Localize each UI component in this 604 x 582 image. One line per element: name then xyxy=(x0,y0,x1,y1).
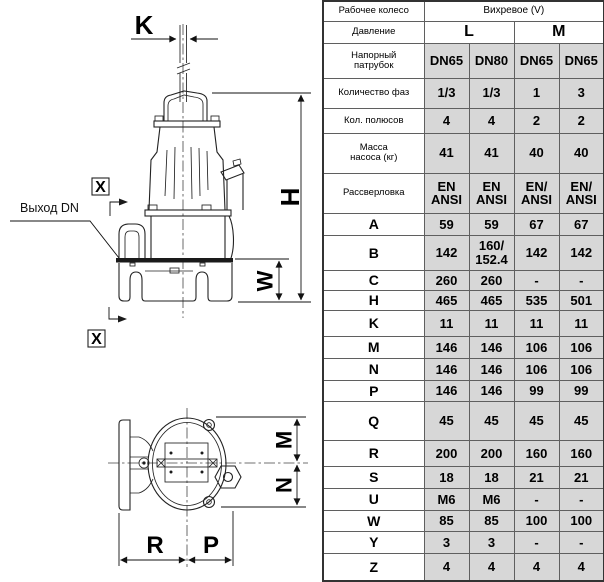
table-row: C260260-- xyxy=(323,270,604,290)
table-row: K11111111 xyxy=(323,310,604,336)
row-value: 106 xyxy=(514,337,559,359)
row-value: 4 xyxy=(469,108,514,133)
bottom-view: M N R P xyxy=(108,408,308,567)
row-value: M6 xyxy=(424,489,469,511)
pressure-option-m: M xyxy=(514,21,604,43)
pressure-row: Давление L M xyxy=(323,21,604,43)
section-marker-upper: X xyxy=(95,179,106,196)
row-value: 99 xyxy=(559,381,604,402)
row-value: 160 xyxy=(559,441,604,467)
row-value: 11 xyxy=(514,310,559,336)
row-label: C xyxy=(323,270,424,290)
dim-label-h: H xyxy=(275,188,305,207)
row-label: Рассверловка xyxy=(323,173,424,213)
row-value: 146 xyxy=(469,337,514,359)
row-value: 106 xyxy=(559,337,604,359)
table-row: H465465535501 xyxy=(323,290,604,310)
row-value: 160 xyxy=(514,441,559,467)
row-value: - xyxy=(514,532,559,554)
base-plate xyxy=(116,258,233,263)
discharge-boss xyxy=(215,466,241,488)
row-value: 1/3 xyxy=(424,78,469,108)
outlet-size-value: DN65 xyxy=(559,43,604,78)
section-arrow-upper xyxy=(110,202,119,216)
cable-break-marks xyxy=(177,63,190,74)
table-row: B142160/ 152.4142142 xyxy=(323,235,604,270)
handle-inner xyxy=(168,95,203,121)
row-value: 142 xyxy=(514,235,559,270)
row-label: R xyxy=(323,441,424,467)
table-row: R200200160160 xyxy=(323,441,604,467)
row-value: EN/ ANSI xyxy=(559,173,604,213)
table-row: W8585100100 xyxy=(323,511,604,532)
row-value: M6 xyxy=(469,489,514,511)
table-row: UM6M6-- xyxy=(323,489,604,511)
motor-flange xyxy=(145,210,231,216)
row-label: K xyxy=(323,310,424,336)
row-value: 99 xyxy=(514,381,559,402)
row-value: 11 xyxy=(559,310,604,336)
dimension-table-area: Рабочее колесо Вихревое (V) Давление L M… xyxy=(322,0,604,582)
row-value: 45 xyxy=(469,402,514,441)
section-arrow-lower xyxy=(109,307,118,319)
dimension-rows: Количество фаз1/31/313Кол. полюсов4422Ма… xyxy=(323,78,604,581)
pump-datasheet: K xyxy=(0,0,604,582)
row-label: N xyxy=(323,359,424,381)
row-value: - xyxy=(559,270,604,290)
outlet-flange xyxy=(119,420,130,510)
table-row: A59596767 xyxy=(323,213,604,235)
row-value: 21 xyxy=(559,467,604,489)
row-label: B xyxy=(323,235,424,270)
row-value: 260 xyxy=(469,270,514,290)
row-value: - xyxy=(514,270,559,290)
row-label: M xyxy=(323,337,424,359)
row-value: 3 xyxy=(424,532,469,554)
row-label: Q xyxy=(323,402,424,441)
row-value: 67 xyxy=(514,213,559,235)
pressure-label: Давление xyxy=(323,21,424,43)
row-label: P xyxy=(323,381,424,402)
row-value: 100 xyxy=(514,511,559,532)
table-row: P1461469999 xyxy=(323,381,604,402)
row-value: 11 xyxy=(469,310,514,336)
row-value: 2 xyxy=(514,108,559,133)
row-value: 1 xyxy=(514,78,559,108)
table-row: S18182121 xyxy=(323,467,604,489)
table-row: РассверловкаEN ANSIEN ANSIEN/ ANSIEN/ AN… xyxy=(323,173,604,213)
table-row: Масса насоса (кг)41414040 xyxy=(323,133,604,173)
row-value: 146 xyxy=(424,359,469,381)
dim-label-n: N xyxy=(272,477,297,493)
outlet-size-value: DN65 xyxy=(514,43,559,78)
impeller-row: Рабочее колесо Вихревое (V) xyxy=(323,1,604,21)
row-value: 4 xyxy=(424,554,469,581)
row-value: - xyxy=(559,532,604,554)
row-label: U xyxy=(323,489,424,511)
impeller-label: Рабочее колесо xyxy=(323,1,424,21)
row-value: 146 xyxy=(469,381,514,402)
row-value: 160/ 152.4 xyxy=(469,235,514,270)
row-value: 45 xyxy=(514,402,559,441)
row-value: 106 xyxy=(514,359,559,381)
row-value: 4 xyxy=(514,554,559,581)
top-cap xyxy=(154,121,220,127)
row-value: 146 xyxy=(469,359,514,381)
row-value: 11 xyxy=(424,310,469,336)
dimensions-table: Рабочее колесо Вихревое (V) Давление L M… xyxy=(322,0,604,582)
row-value: 40 xyxy=(514,133,559,173)
table-row: Z4444 xyxy=(323,554,604,581)
table-row: Y33-- xyxy=(323,532,604,554)
discharge-outlet-inner xyxy=(125,231,139,258)
dim-label-r: R xyxy=(146,532,163,559)
section-marker-lower: X xyxy=(91,331,102,348)
row-value: 59 xyxy=(424,213,469,235)
pressure-option-l: L xyxy=(424,21,514,43)
row-value: 40 xyxy=(559,133,604,173)
pump-drawing: K xyxy=(0,0,322,582)
row-label: A xyxy=(323,213,424,235)
row-value: 260 xyxy=(424,270,469,290)
row-value: 142 xyxy=(559,235,604,270)
table-row: N146146106106 xyxy=(323,359,604,381)
row-value: 4 xyxy=(469,554,514,581)
row-value: 1/3 xyxy=(469,78,514,108)
outlet-annotation: Выход DN xyxy=(20,201,79,215)
table-row: Q45454545 xyxy=(323,402,604,441)
row-value: 4 xyxy=(559,554,604,581)
row-value: 501 xyxy=(559,290,604,310)
row-value: 67 xyxy=(559,213,604,235)
row-value: EN/ ANSI xyxy=(514,173,559,213)
motor-body-right xyxy=(214,127,225,210)
row-value: 142 xyxy=(424,235,469,270)
row-label: W xyxy=(323,511,424,532)
row-label: Y xyxy=(323,532,424,554)
outlet-leader xyxy=(10,221,119,258)
row-value: 21 xyxy=(514,467,559,489)
bolt-boss-top xyxy=(204,420,215,431)
discharge-outlet-outer xyxy=(119,224,145,258)
row-value: 59 xyxy=(469,213,514,235)
outlet-size-label: Напорный патрубок xyxy=(323,43,424,78)
row-value: 3 xyxy=(469,532,514,554)
row-value: - xyxy=(559,489,604,511)
row-value: 106 xyxy=(559,359,604,381)
motor-ribs xyxy=(165,147,208,199)
outlet-size-value: DN65 xyxy=(424,43,469,78)
row-value: 465 xyxy=(469,290,514,310)
row-value: 18 xyxy=(424,467,469,489)
row-value: 146 xyxy=(424,381,469,402)
row-value: 41 xyxy=(424,133,469,173)
row-value: 45 xyxy=(559,402,604,441)
side-view: K xyxy=(10,10,311,348)
motor-section xyxy=(165,443,208,482)
row-value: 85 xyxy=(469,511,514,532)
row-value: 100 xyxy=(559,511,604,532)
cable-entry-box xyxy=(221,165,244,180)
feet xyxy=(119,263,232,301)
row-value: 41 xyxy=(469,133,514,173)
table-row: M146146106106 xyxy=(323,337,604,359)
row-value: 2 xyxy=(559,108,604,133)
outlet-row: Напорный патрубок DN65 DN80 DN65 DN65 xyxy=(323,43,604,78)
row-value: 4 xyxy=(424,108,469,133)
dim-label-m: M xyxy=(272,431,297,449)
outlet-size-value: DN80 xyxy=(469,43,514,78)
motor-body-left xyxy=(149,127,160,210)
row-label: Масса насоса (кг) xyxy=(323,133,424,173)
row-value: 146 xyxy=(424,337,469,359)
row-value: 3 xyxy=(559,78,604,108)
row-value: - xyxy=(514,489,559,511)
row-value: EN ANSI xyxy=(424,173,469,213)
row-label: H xyxy=(323,290,424,310)
table-row: Количество фаз1/31/313 xyxy=(323,78,604,108)
dim-label-p: P xyxy=(203,532,219,559)
row-label: Кол. полюсов xyxy=(323,108,424,133)
row-value: 200 xyxy=(469,441,514,467)
row-value: 535 xyxy=(514,290,559,310)
row-label: Z xyxy=(323,554,424,581)
row-value: 18 xyxy=(469,467,514,489)
dim-label-k: K xyxy=(135,10,154,40)
row-value: 465 xyxy=(424,290,469,310)
table-row: Кол. полюсов4422 xyxy=(323,108,604,133)
row-value: 200 xyxy=(424,441,469,467)
dim-label-w: W xyxy=(253,270,278,291)
impeller-value: Вихревое (V) xyxy=(424,1,604,21)
row-value: 85 xyxy=(424,511,469,532)
row-value: 45 xyxy=(424,402,469,441)
row-value: EN ANSI xyxy=(469,173,514,213)
row-label: S xyxy=(323,467,424,489)
header-rows: Рабочее колесо Вихревое (V) Давление L M… xyxy=(323,1,604,78)
row-label: Количество фаз xyxy=(323,78,424,108)
